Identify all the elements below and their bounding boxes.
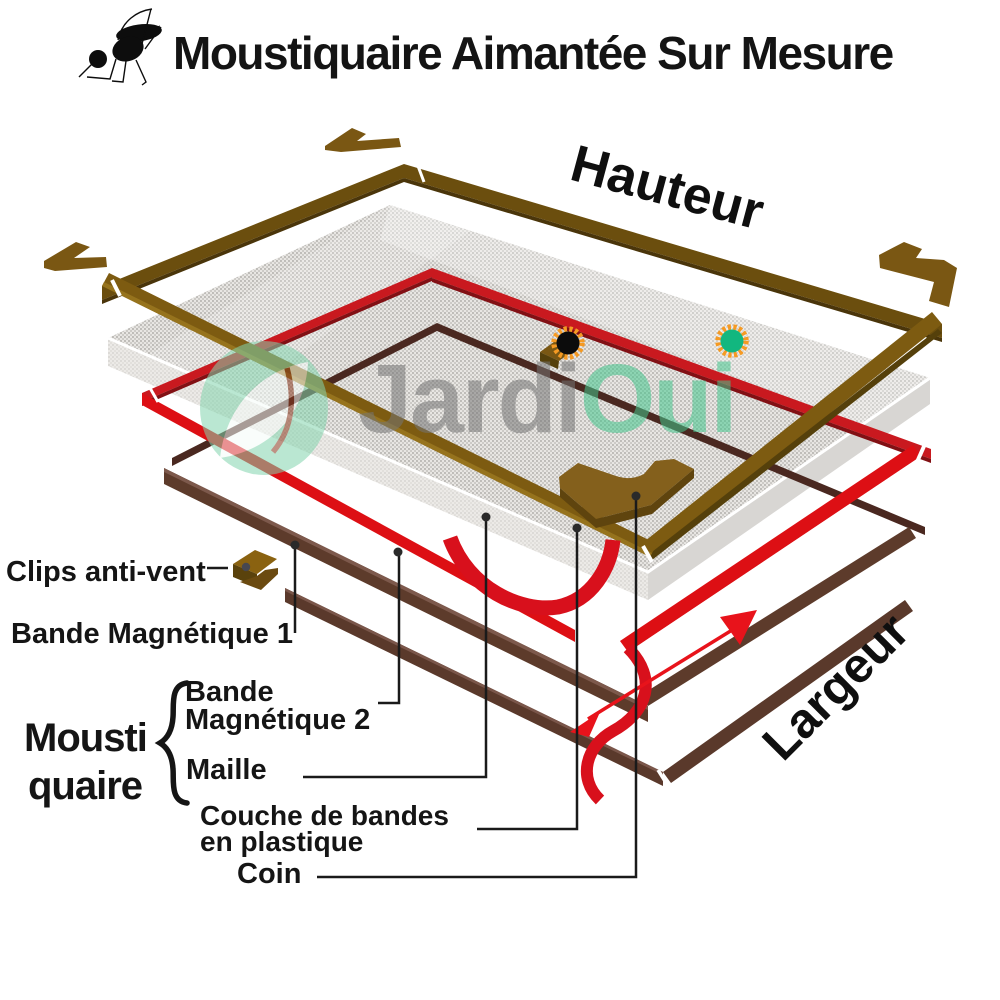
svg-text:en plastique: en plastique xyxy=(200,826,363,857)
svg-text:Clips anti-vent: Clips anti-vent xyxy=(6,556,206,588)
svg-text:Moustiquaire Aimantée Sur Mesu: Moustiquaire Aimantée Sur Mesure xyxy=(173,27,894,79)
svg-text:Bande Magnétique 1: Bande Magnétique 1 xyxy=(11,618,293,650)
svg-text:Maille: Maille xyxy=(186,754,267,786)
svg-text:Magnétique 2: Magnétique 2 xyxy=(185,704,370,736)
svg-text:JardiOui: JardiOui xyxy=(358,344,736,453)
svg-text:quaire: quaire xyxy=(28,764,142,808)
svg-text:Largeur: Largeur xyxy=(753,604,920,771)
svg-text:Coin: Coin xyxy=(237,858,301,890)
svg-text:Mousti: Mousti xyxy=(24,716,147,760)
